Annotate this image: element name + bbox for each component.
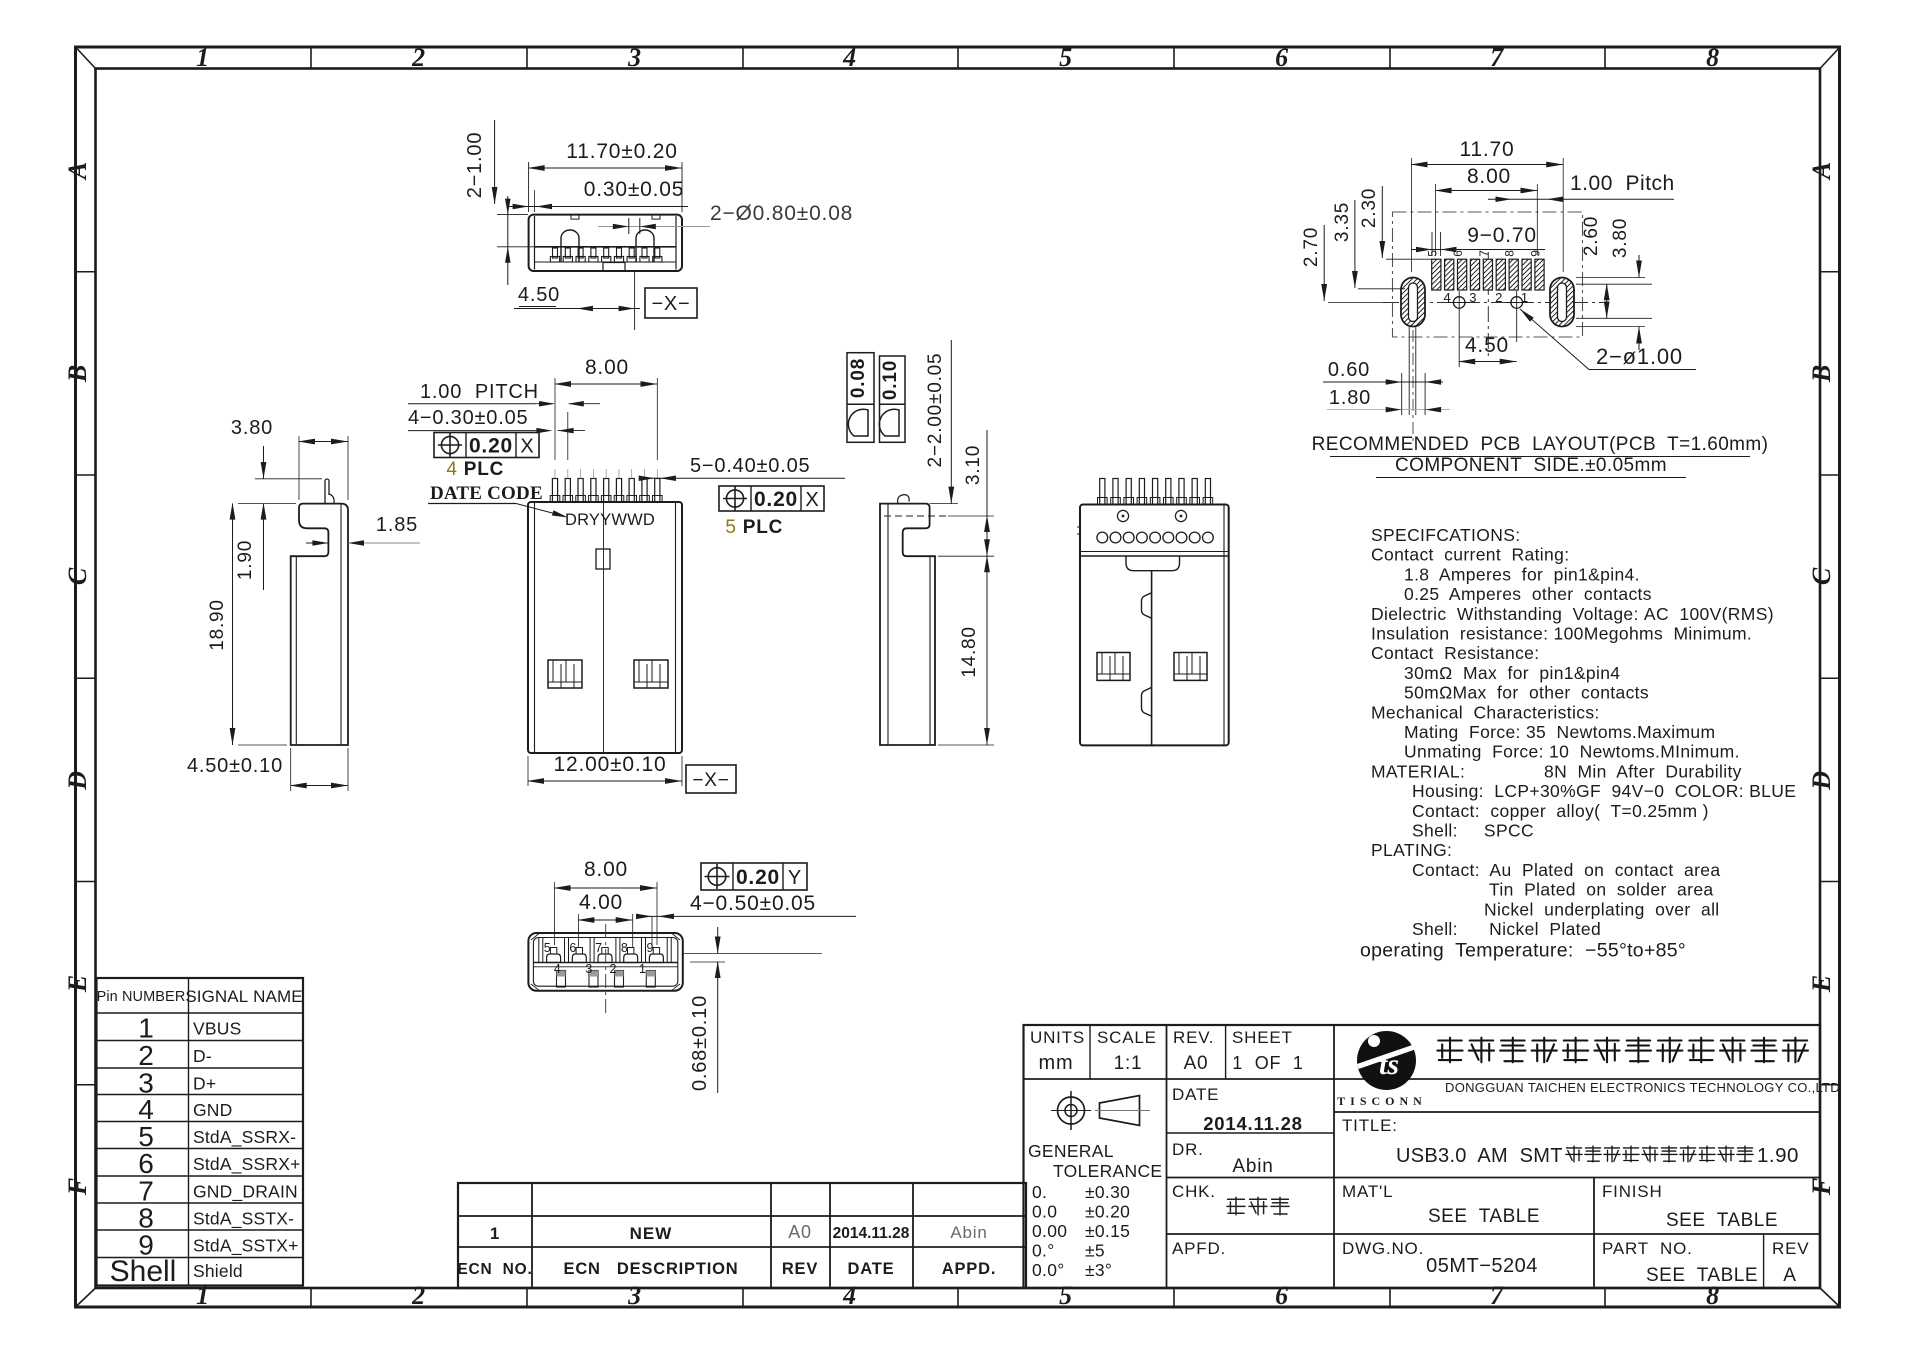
svg-text:±0.20: ±0.20	[1085, 1202, 1130, 1222]
svg-text:0.25 Amperes other contacts: 0.25 Amperes other contacts	[1404, 584, 1652, 604]
svg-text:0.08: 0.08	[848, 358, 869, 398]
svg-text:7: 7	[1490, 1281, 1504, 1310]
svg-text:14.80: 14.80	[959, 626, 980, 678]
svg-text:1.90: 1.90	[1757, 1144, 1799, 1167]
svg-text:ts: ts	[1379, 1048, 1399, 1081]
svg-text:REV: REV	[1772, 1239, 1809, 1258]
svg-text:SCALE: SCALE	[1097, 1028, 1157, 1047]
svg-text:5−0.40±0.05: 5−0.40±0.05	[690, 455, 810, 477]
svg-text:1: 1	[138, 1013, 154, 1044]
svg-text:1.90: 1.90	[235, 540, 256, 580]
svg-text:2−2.00±0.05: 2−2.00±0.05	[925, 353, 946, 468]
svg-text:SIGNAL NAME: SIGNAL NAME	[185, 987, 302, 1006]
svg-text:0.20: 0.20	[736, 866, 780, 889]
svg-text:2: 2	[1495, 290, 1503, 305]
svg-text:2: 2	[138, 1040, 154, 1071]
svg-text:8: 8	[621, 941, 629, 955]
svg-text:2−1.00: 2−1.00	[464, 132, 486, 199]
svg-text:4.50: 4.50	[518, 284, 560, 306]
svg-text:Housing: LCP+30%GF 94V−0 CO: Housing: LCP+30%GF 94V−0 COLOR: BLUE	[1412, 781, 1796, 801]
svg-text:MATERIAL:: MATERIAL:	[1371, 761, 1465, 781]
svg-text:0.00: 0.00	[1032, 1221, 1067, 1241]
svg-text:Insulation resistance: 100Meg: Insulation resistance: 100Megohms Minimu…	[1371, 624, 1752, 644]
svg-text:6: 6	[569, 941, 577, 955]
svg-text:Y: Y	[788, 867, 802, 889]
svg-text:3: 3	[627, 1281, 642, 1310]
svg-text:DATE: DATE	[848, 1260, 895, 1278]
svg-text:4.50: 4.50	[1465, 334, 1509, 357]
svg-text:Shell: Nickel Plated: Shell: Nickel Plated	[1412, 919, 1601, 939]
svg-text:30mΩ Max for pin1&pin4: 30mΩ Max for pin1&pin4	[1404, 663, 1620, 683]
svg-text:1.80: 1.80	[1329, 387, 1371, 409]
svg-text:COMPONENT SIDE.±0.05mm: COMPONENT SIDE.±0.05mm	[1395, 455, 1667, 476]
svg-text:4.50±0.10: 4.50±0.10	[187, 755, 283, 777]
svg-text:9: 9	[647, 941, 655, 955]
svg-text:E: E	[1807, 974, 1836, 993]
svg-text:REV: REV	[782, 1260, 818, 1278]
svg-text:E: E	[63, 974, 92, 993]
svg-text:MAT'L: MAT'L	[1342, 1182, 1393, 1201]
svg-text:0.°: 0.°	[1032, 1241, 1055, 1261]
svg-text:PLC: PLC	[464, 459, 504, 480]
svg-text:8: 8	[1503, 249, 1517, 256]
svg-text:8N Min After Durability: 8N Min After Durability	[1544, 761, 1742, 781]
svg-text:APPD.: APPD.	[942, 1260, 996, 1278]
svg-text:GENERAL: GENERAL	[1028, 1141, 1114, 1161]
svg-text:Contact: copper alloy( T=0.: Contact: copper alloy( T=0.25mm )	[1412, 801, 1709, 821]
svg-text:7: 7	[1477, 249, 1491, 256]
svg-text:A0: A0	[1184, 1053, 1209, 1074]
svg-text:2: 2	[411, 1281, 426, 1310]
svg-text:8.00: 8.00	[585, 356, 629, 379]
svg-text:A: A	[1783, 1265, 1796, 1286]
svg-text:0.30±0.05: 0.30±0.05	[584, 178, 684, 201]
svg-text:USB3.0 AM SMT: USB3.0 AM SMT	[1396, 1145, 1563, 1167]
svg-text:0.60: 0.60	[1328, 359, 1370, 381]
svg-text:1: 1	[196, 43, 210, 72]
svg-text:A: A	[63, 161, 92, 181]
svg-text:F: F	[63, 1177, 92, 1196]
svg-text:NEW: NEW	[630, 1224, 673, 1243]
svg-text:TOLERANCE: TOLERANCE	[1053, 1161, 1162, 1181]
svg-text:3: 3	[627, 43, 642, 72]
svg-text:Tin Plated on solder area: Tin Plated on solder area	[1489, 880, 1713, 900]
svg-text:4: 4	[842, 1281, 857, 1310]
svg-text:2.30: 2.30	[1359, 188, 1380, 228]
svg-text:0.0°: 0.0°	[1032, 1260, 1065, 1280]
svg-text:6: 6	[1275, 43, 1289, 72]
svg-text:05MT−5204: 05MT−5204	[1426, 1255, 1538, 1277]
svg-text:2: 2	[411, 43, 426, 72]
svg-text:Contact current Rating:: Contact current Rating:	[1371, 545, 1569, 565]
svg-text:D: D	[1807, 770, 1836, 791]
svg-text:Contact Resistance:: Contact Resistance:	[1371, 643, 1539, 663]
svg-text:F: F	[1807, 1177, 1836, 1196]
svg-text:Unmating Force: 10 Newtoms.M: Unmating Force: 10 Newtoms.MInimum.	[1404, 742, 1740, 762]
svg-text:±0.30: ±0.30	[1085, 1182, 1130, 1202]
svg-text:B: B	[1807, 364, 1836, 383]
svg-text:StdA_SSTX+: StdA_SSTX+	[193, 1236, 299, 1257]
svg-text:11.70±0.20: 11.70±0.20	[566, 140, 677, 163]
svg-text:D: D	[63, 770, 92, 791]
svg-text:DONGGUAN TAICHEN ELECTRONICS T: DONGGUAN TAICHEN ELECTRONICS TECHNOLOGY …	[1445, 1080, 1840, 1095]
svg-text:0.20: 0.20	[469, 435, 513, 458]
svg-text:11.70: 11.70	[1460, 138, 1515, 161]
svg-text:StdA_SSRX+: StdA_SSRX+	[193, 1154, 301, 1175]
svg-text:Mechanical Characteristics:: Mechanical Characteristics:	[1371, 702, 1600, 722]
svg-text:Shell: Shell	[110, 1255, 177, 1288]
svg-text:18.90: 18.90	[207, 599, 228, 651]
svg-text:VBUS: VBUS	[193, 1019, 241, 1039]
svg-text:4: 4	[842, 43, 857, 72]
svg-text:CHK.: CHK.	[1172, 1182, 1216, 1201]
svg-text:C: C	[1807, 567, 1836, 585]
svg-text:2014.11.28: 2014.11.28	[833, 1225, 910, 1242]
svg-text:PLATING:: PLATING:	[1371, 840, 1452, 860]
svg-text:7: 7	[595, 941, 603, 955]
svg-text:50mΩMax for other contacts: 50mΩMax for other contacts	[1404, 683, 1649, 703]
svg-text:B: B	[63, 364, 92, 383]
svg-text:A0: A0	[788, 1222, 812, 1242]
svg-text:0.20: 0.20	[754, 488, 798, 511]
svg-text:6: 6	[1275, 1281, 1289, 1310]
svg-text:9: 9	[1529, 249, 1543, 256]
svg-text:operating Temperature: −55°t: operating Temperature: −55°to+85°	[1360, 940, 1686, 962]
svg-text:3.80: 3.80	[1610, 218, 1631, 258]
svg-text:5: 5	[1059, 43, 1073, 72]
svg-text:PLC: PLC	[743, 517, 783, 538]
svg-text:2.70: 2.70	[1301, 227, 1322, 267]
svg-text:3: 3	[585, 962, 593, 976]
svg-text:1.8 Amperes for pin1&pin4.: 1.8 Amperes for pin1&pin4.	[1404, 564, 1640, 584]
svg-text:C: C	[63, 567, 92, 585]
svg-text:1.00 PITCH: 1.00 PITCH	[420, 381, 539, 403]
svg-text:X: X	[805, 489, 819, 511]
svg-text:±5: ±5	[1085, 1241, 1105, 1261]
svg-text:1:1: 1:1	[1114, 1053, 1143, 1074]
svg-text:DRYYWWD: DRYYWWD	[565, 511, 655, 529]
svg-text:PART NO.: PART NO.	[1602, 1239, 1693, 1258]
svg-text:RECOMMENDED PCB LAYOUT(PCB: RECOMMENDED PCB LAYOUT(PCB T=1.60mm)	[1312, 434, 1769, 455]
svg-text:2014.11.28: 2014.11.28	[1203, 1113, 1303, 1134]
svg-text:1 OF 1: 1 OF 1	[1232, 1053, 1303, 1073]
svg-text:5: 5	[544, 941, 552, 955]
svg-text:TITLE:: TITLE:	[1342, 1116, 1398, 1135]
svg-text:DR.: DR.	[1172, 1140, 1204, 1159]
svg-text:SHEET: SHEET	[1232, 1028, 1293, 1047]
svg-text:Abin: Abin	[1232, 1156, 1273, 1177]
svg-text:Abin: Abin	[950, 1223, 987, 1242]
svg-text:−X−: −X−	[651, 293, 690, 315]
svg-text:8: 8	[1706, 43, 1720, 72]
svg-text:4−0.30±0.05: 4−0.30±0.05	[408, 407, 528, 429]
svg-text:3.80: 3.80	[231, 417, 273, 439]
svg-text:9−0.70: 9−0.70	[1467, 224, 1537, 247]
svg-text:ECN NO.: ECN NO.	[457, 1261, 532, 1278]
svg-text:2: 2	[610, 962, 618, 976]
svg-text:5: 5	[1059, 1281, 1073, 1310]
svg-text:0.68±0.10: 0.68±0.10	[689, 995, 711, 1091]
svg-text:SPECIFCATIONS:: SPECIFCATIONS:	[1371, 525, 1520, 545]
svg-text:Dielectric Withstanding Volt: Dielectric Withstanding Voltage: AC 100V…	[1371, 604, 1774, 624]
svg-text:3: 3	[1469, 290, 1477, 305]
svg-text:StdA_SSTX-: StdA_SSTX-	[193, 1209, 294, 1230]
svg-text:D-: D-	[193, 1046, 212, 1066]
svg-text:DATE: DATE	[1172, 1085, 1219, 1104]
svg-text:1.00 Pitch: 1.00 Pitch	[1570, 172, 1675, 195]
svg-text:DWG.NO.: DWG.NO.	[1342, 1239, 1424, 1258]
svg-text:StdA_SSRX-: StdA_SSRX-	[193, 1127, 296, 1148]
svg-text:Shell: SPCC: Shell: SPCC	[1412, 821, 1534, 841]
svg-text:4: 4	[554, 962, 562, 976]
svg-text:Shield: Shield	[193, 1261, 243, 1281]
svg-text:0.: 0.	[1032, 1182, 1047, 1202]
svg-text:1.85: 1.85	[376, 514, 418, 536]
svg-text:TISCONN: TISCONN	[1337, 1094, 1427, 1108]
svg-text:APFD.: APFD.	[1172, 1239, 1226, 1258]
svg-text:DATE CODE: DATE CODE	[430, 483, 543, 504]
svg-text:Mating Force: 35 Newtoms.Max: Mating Force: 35 Newtoms.Maximum	[1404, 722, 1715, 742]
svg-text:FINISH: FINISH	[1602, 1182, 1663, 1201]
svg-text:2−Ø0.80±0.08: 2−Ø0.80±0.08	[710, 202, 853, 225]
svg-text:1: 1	[639, 962, 647, 976]
svg-text:SEE TABLE: SEE TABLE	[1428, 1206, 1540, 1227]
svg-text:4: 4	[446, 459, 457, 480]
svg-text:±3°: ±3°	[1085, 1260, 1112, 1280]
svg-text:2.60: 2.60	[1581, 216, 1602, 256]
svg-text:5: 5	[725, 517, 736, 538]
svg-text:−X−: −X−	[692, 770, 729, 791]
svg-text:2−ø1.00: 2−ø1.00	[1596, 344, 1683, 369]
svg-text:0.10: 0.10	[880, 360, 901, 400]
svg-text:4.00: 4.00	[579, 891, 623, 914]
svg-text:SEE TABLE: SEE TABLE	[1666, 1210, 1778, 1231]
svg-text:X: X	[520, 436, 534, 458]
svg-text:Contact: Au Plated on cont: Contact: Au Plated on contact area	[1412, 860, 1720, 880]
svg-text:4−0.50±0.05: 4−0.50±0.05	[690, 892, 816, 915]
svg-text:3.10: 3.10	[963, 445, 984, 485]
svg-text:6: 6	[138, 1148, 154, 1179]
svg-text:7: 7	[1490, 43, 1504, 72]
svg-text:8.00: 8.00	[1467, 165, 1511, 188]
svg-text:D+: D+	[193, 1074, 216, 1094]
svg-text:3.35: 3.35	[1332, 202, 1353, 242]
svg-text:UNITS: UNITS	[1030, 1028, 1085, 1047]
svg-text:1: 1	[490, 1224, 500, 1243]
svg-text:12.00±0.10: 12.00±0.10	[554, 753, 667, 776]
svg-text:mm: mm	[1039, 1052, 1074, 1074]
svg-text:GND: GND	[193, 1100, 233, 1120]
svg-text:SEE TABLE: SEE TABLE	[1646, 1265, 1758, 1286]
svg-text:Pin NUMBER: Pin NUMBER	[97, 989, 186, 1005]
svg-text:REV.: REV.	[1173, 1028, 1214, 1047]
svg-text:ECN DESCRIPTION: ECN DESCRIPTION	[564, 1260, 739, 1278]
svg-text:0.0: 0.0	[1032, 1202, 1057, 1222]
svg-text:8.00: 8.00	[584, 858, 628, 881]
svg-text:GND_DRAIN: GND_DRAIN	[193, 1182, 298, 1203]
svg-text:A: A	[1807, 161, 1836, 181]
svg-text:Nickel underplating over al: Nickel underplating over all	[1484, 899, 1720, 919]
svg-text:±0.15: ±0.15	[1085, 1221, 1130, 1241]
